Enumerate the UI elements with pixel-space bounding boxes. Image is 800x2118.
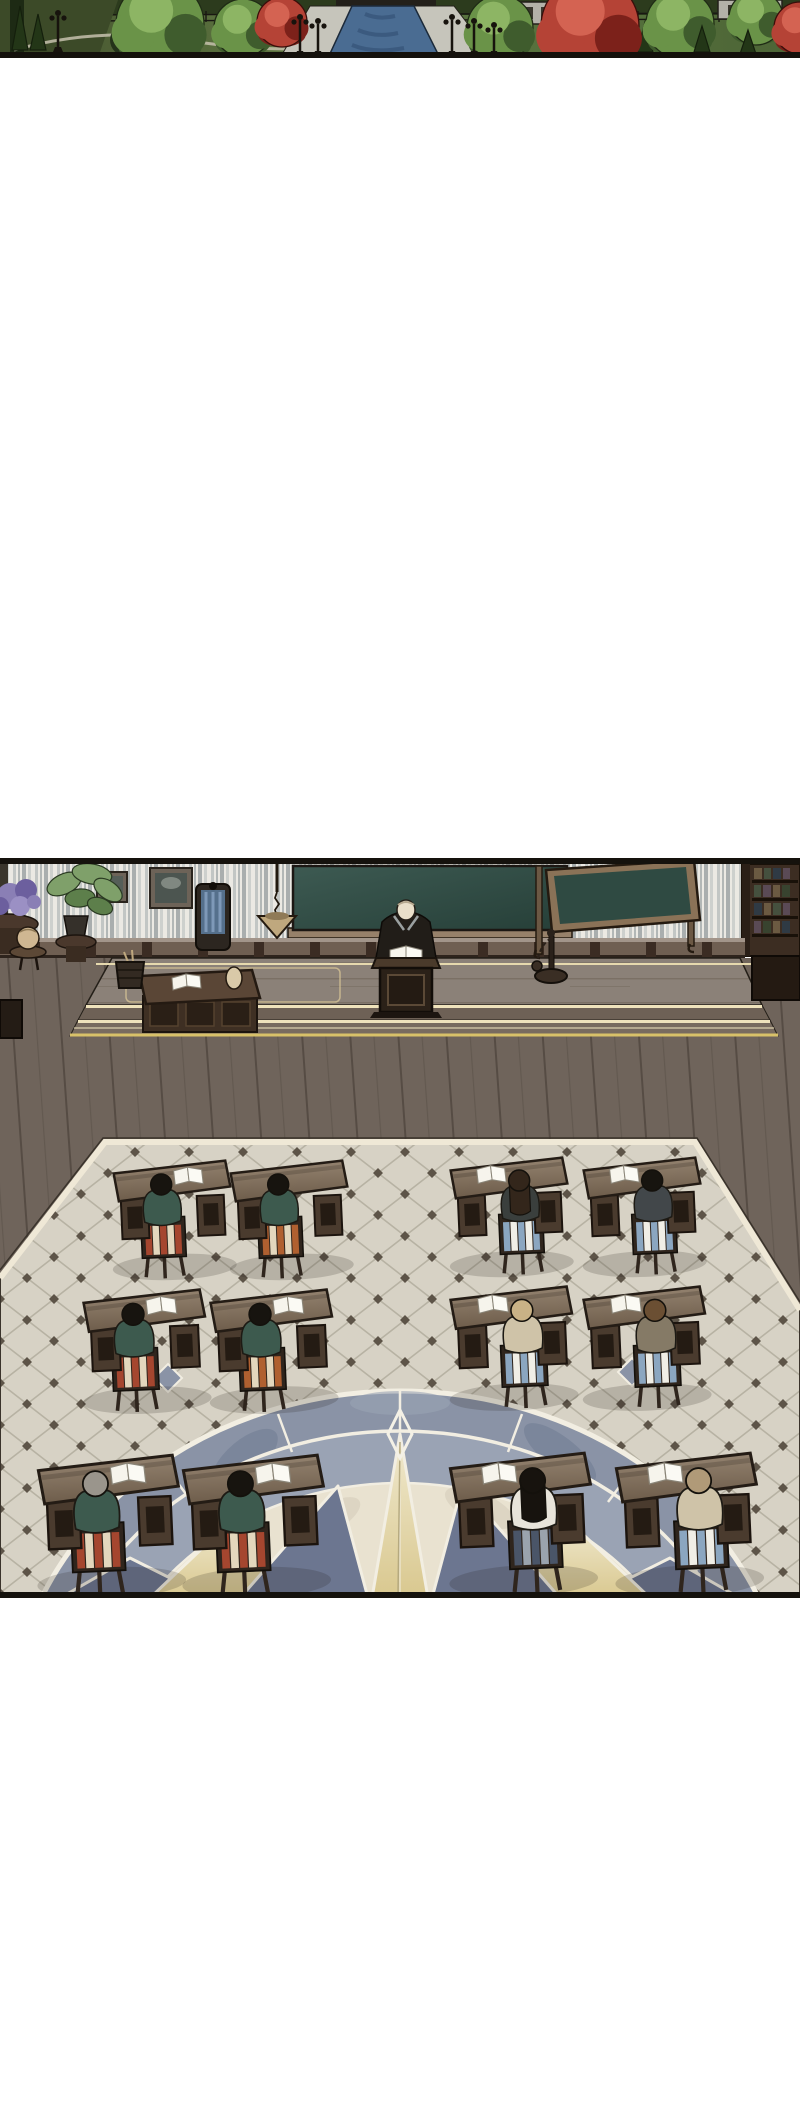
rail-post [478, 942, 488, 957]
student-head [643, 1299, 666, 1322]
teacher-desk [140, 967, 260, 1032]
rail-post [646, 942, 656, 957]
student-head [267, 1174, 289, 1196]
painting [150, 868, 192, 908]
student-desk [225, 1160, 354, 1282]
student-desk [177, 1455, 332, 1598]
garden-strip-panel [0, 0, 800, 58]
student-desk [445, 1157, 574, 1279]
rail-post [366, 942, 376, 957]
student-desk [205, 1289, 339, 1416]
gutter-white [0, 58, 800, 858]
panel-border-bottom [0, 52, 800, 58]
panel-border-top [0, 858, 800, 864]
student-desk [444, 1453, 599, 1598]
student-desk [578, 1157, 707, 1279]
student-desk [445, 1286, 579, 1413]
desk-lamp [226, 967, 242, 989]
side-table [0, 1000, 22, 1038]
wainscot-rail [0, 938, 745, 958]
tall-chair [196, 882, 230, 950]
side-cabinet [752, 956, 800, 1000]
student-head [685, 1468, 711, 1494]
bookshelf [742, 864, 800, 956]
student-desk [108, 1160, 237, 1282]
student-desk [578, 1286, 712, 1413]
student-head [508, 1170, 530, 1192]
rail-post [590, 942, 600, 957]
student-head [82, 1471, 108, 1497]
student-head [510, 1299, 533, 1322]
student-head [122, 1303, 145, 1326]
red-maple-tree [536, 0, 642, 58]
student-head [519, 1468, 545, 1494]
student-head [227, 1471, 253, 1497]
classroom-panel [0, 858, 800, 1598]
panel-border-bottom [0, 1592, 800, 1598]
student-head [249, 1303, 272, 1326]
student-head [641, 1170, 663, 1192]
rail-post [702, 942, 712, 957]
comic-page [0, 0, 800, 2118]
gutter-white-bottom [0, 1598, 800, 2118]
student-desk [610, 1453, 765, 1598]
rail-post [142, 942, 152, 957]
student-desk [78, 1289, 212, 1416]
rail-post [310, 942, 320, 957]
tree-canopy [112, 0, 207, 58]
student-desk [32, 1455, 187, 1598]
student-head [150, 1174, 172, 1196]
rail-post [254, 942, 264, 957]
